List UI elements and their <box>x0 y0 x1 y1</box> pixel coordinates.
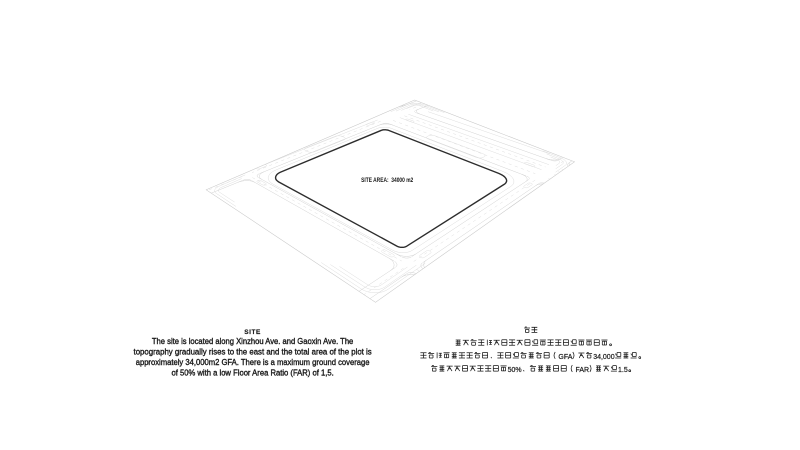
svg-text:FAR: FAR <box>576 367 590 374</box>
svg-text:approximately 34,000m2 GFA. Th: approximately 34,000m2 GFA. There is a m… <box>136 358 370 368</box>
svg-text:GFA: GFA <box>558 354 572 361</box>
svg-text:34,000: 34,000 <box>593 354 615 361</box>
svg-text:SITE: SITE <box>244 329 261 336</box>
svg-text:SITE AREA: 34000 m2: SITE AREA: 34000 m2 <box>361 177 413 184</box>
svg-text:The site is located along Xinz: The site is located along Xinzhou Ave. a… <box>152 337 354 347</box>
svg-text:50%: 50% <box>508 367 522 374</box>
svg-text:topography gradually rises to: topography gradually rises to the east a… <box>134 347 372 356</box>
svg-text:of 50% with a low Floor Area R: of 50% with a low Floor Area Ratio (FAR)… <box>171 368 333 378</box>
svg-text:1.5: 1.5 <box>618 367 628 374</box>
